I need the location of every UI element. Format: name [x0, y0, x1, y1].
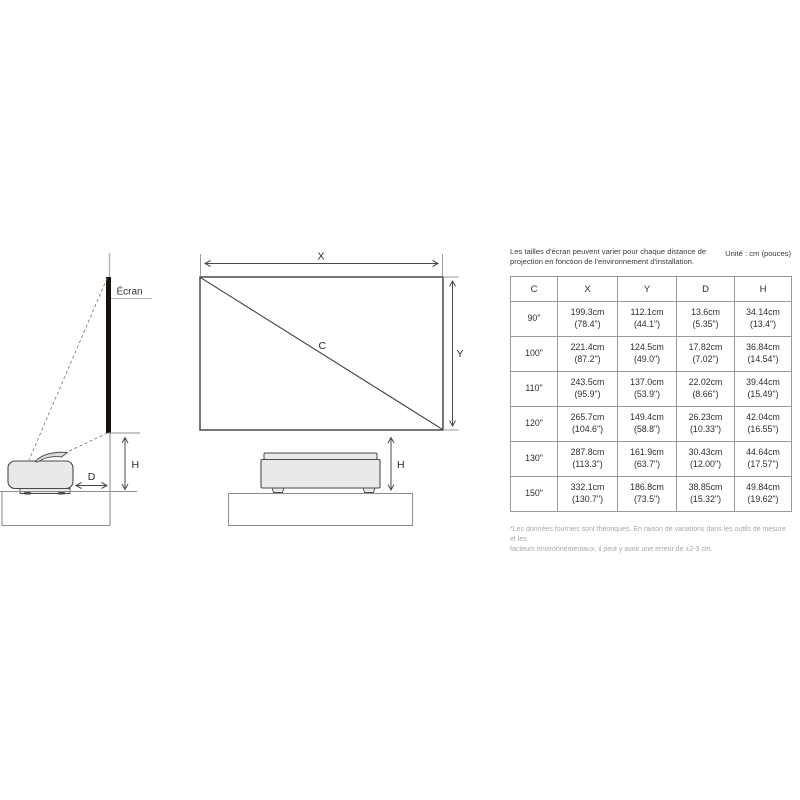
- x-label: X: [317, 251, 324, 263]
- inch-value: (87.2"): [558, 354, 617, 366]
- table-row: 90" 199.3cm(78.4") 112.1cm(44.1") 13.6cm…: [511, 302, 792, 337]
- cm-value: 39.44cm: [735, 377, 791, 389]
- inch-value: (19.62"): [735, 494, 791, 506]
- cm-value: 42.04cm: [735, 412, 791, 424]
- cm-value: 22.02cm: [677, 377, 734, 389]
- inch-value: (113.3"): [558, 459, 617, 471]
- value-cell: 332.1cm(130.7"): [558, 477, 618, 512]
- value-cell: 22.02cm(8.66"): [677, 372, 735, 407]
- inch-value: (15.32"): [677, 494, 734, 506]
- size-cell: 100": [511, 337, 558, 372]
- inch-value: (130.7"): [558, 494, 617, 506]
- cm-value: 221.4cm: [558, 342, 617, 354]
- value-cell: 49.84cm(19.62"): [735, 477, 792, 512]
- value-cell: 243.5cm(95.9"): [558, 372, 618, 407]
- h-label-front: H: [397, 459, 405, 471]
- value-cell: 42.04cm(16.55"): [735, 407, 792, 442]
- size-cell: 120": [511, 407, 558, 442]
- value-cell: 26.23cm(10.33"): [677, 407, 735, 442]
- table-row: 150" 332.1cm(130.7") 186.8cm(73.5") 38.8…: [511, 477, 792, 512]
- cm-value: 13.6cm: [677, 307, 734, 319]
- inch-value: (16.55"): [735, 424, 791, 436]
- cm-value: 265.7cm: [558, 412, 617, 424]
- value-cell: 137.0cm(53.9"): [618, 372, 677, 407]
- inch-value: (12.00"): [677, 459, 734, 471]
- value-cell: 13.6cm(5.35"): [677, 302, 735, 337]
- inch-value: (63.7"): [618, 459, 676, 471]
- projection-beam-upper: [29, 279, 107, 461]
- projector-front-foot-right: [363, 488, 375, 493]
- projector-side-body: [8, 461, 73, 489]
- intro-text: Les tailles d'écran peuvent varier pour …: [510, 247, 735, 266]
- front-view-diagram: X C Y H: [200, 251, 464, 526]
- inch-value: (58.8"): [618, 424, 676, 436]
- cm-value: 30.43cm: [677, 447, 734, 459]
- projector-side-foot-right: [58, 492, 65, 495]
- cm-value: 26.23cm: [677, 412, 734, 424]
- screen-size-table: C X Y D H 90" 199.3cm(78.4") 112.1cm(44.…: [510, 276, 792, 512]
- value-cell: 124.5cm(49.0"): [618, 337, 677, 372]
- cm-value: 199.3cm: [558, 307, 617, 319]
- inch-value: (44.1"): [618, 319, 676, 331]
- size-cell: 130": [511, 442, 558, 477]
- header-c: C: [511, 277, 558, 302]
- table-row: 120" 265.7cm(104.6") 149.4cm(58.8") 26.2…: [511, 407, 792, 442]
- value-cell: 186.8cm(73.5"): [618, 477, 677, 512]
- value-cell: 17.82cm(7.02"): [677, 337, 735, 372]
- header-row: C X Y D H: [511, 277, 792, 302]
- cm-value: 36.84cm: [735, 342, 791, 354]
- inch-value: (17.57"): [735, 459, 791, 471]
- table-row: 100" 221.4cm(87.2") 124.5cm(49.0") 17.82…: [511, 337, 792, 372]
- value-cell: 39.44cm(15.49"): [735, 372, 792, 407]
- inch-value: (104.6"): [558, 424, 617, 436]
- stand-table-front: [229, 494, 413, 526]
- cm-value: 38.85cm: [677, 482, 734, 494]
- header-y: Y: [618, 277, 677, 302]
- cm-value: 44.64cm: [735, 447, 791, 459]
- value-cell: 221.4cm(87.2"): [558, 337, 618, 372]
- value-cell: 36.84cm(14.54"): [735, 337, 792, 372]
- inch-value: (73.5"): [618, 494, 676, 506]
- value-cell: 149.4cm(58.8"): [618, 407, 677, 442]
- inch-value: (15.49"): [735, 389, 791, 401]
- table-row: 110" 243.5cm(95.9") 137.0cm(53.9") 22.02…: [511, 372, 792, 407]
- cm-value: 17.82cm: [677, 342, 734, 354]
- value-cell: 199.3cm(78.4"): [558, 302, 618, 337]
- inch-value: (53.9"): [618, 389, 676, 401]
- cm-value: 34.14cm: [735, 307, 791, 319]
- inch-value: (78.4"): [558, 319, 617, 331]
- inch-value: (49.0"): [618, 354, 676, 366]
- footnote-text: *Les données fournies sont théoriques. E…: [510, 525, 791, 555]
- cm-value: 332.1cm: [558, 482, 617, 494]
- value-cell: 44.64cm(17.57"): [735, 442, 792, 477]
- inch-value: (14.54"): [735, 354, 791, 366]
- installation-diagrams: Écran D H X C: [0, 240, 480, 540]
- cm-value: 149.4cm: [618, 412, 676, 424]
- inch-value: (5.35"): [677, 319, 734, 331]
- value-cell: 30.43cm(12.00"): [677, 442, 735, 477]
- screen-side-bar: [106, 277, 111, 433]
- inch-value: (95.9"): [558, 389, 617, 401]
- header-x: X: [558, 277, 618, 302]
- spec-panel: Les tailles d'écran peuvent varier pour …: [510, 247, 791, 555]
- size-cell: 150": [511, 477, 558, 512]
- cm-value: 161.9cm: [618, 447, 676, 459]
- projector-front-top: [264, 453, 377, 460]
- value-cell: 287.8cm(113.3"): [558, 442, 618, 477]
- cm-value: 124.5cm: [618, 342, 676, 354]
- cm-value: 243.5cm: [558, 377, 617, 389]
- h-label-side: H: [132, 459, 140, 471]
- inch-value: (13.4"): [735, 319, 791, 331]
- projector-front-body: [261, 460, 380, 489]
- size-cell: 110": [511, 372, 558, 407]
- cm-value: 112.1cm: [618, 307, 676, 319]
- c-label: C: [319, 340, 327, 352]
- value-cell: 34.14cm(13.4"): [735, 302, 792, 337]
- screen-label: Écran: [117, 285, 143, 298]
- table-row: 130" 287.8cm(113.3") 161.9cm(63.7") 30.4…: [511, 442, 792, 477]
- value-cell: 38.85cm(15.32"): [677, 477, 735, 512]
- projection-beam-lower: [66, 433, 108, 453]
- header-d: D: [677, 277, 735, 302]
- stand-table-side: [2, 492, 110, 526]
- unit-label: Unité : cm (pouces): [725, 249, 791, 258]
- cm-value: 186.8cm: [618, 482, 676, 494]
- y-label: Y: [457, 348, 464, 360]
- header-h: H: [735, 277, 792, 302]
- cm-value: 287.8cm: [558, 447, 617, 459]
- inch-value: (7.02"): [677, 354, 734, 366]
- manual-page: Écran D H X C: [0, 0, 800, 800]
- value-cell: 265.7cm(104.6"): [558, 407, 618, 442]
- side-view-diagram: Écran D H: [0, 253, 152, 526]
- inch-value: (10.33"): [677, 424, 734, 436]
- projector-front-foot-left: [272, 488, 284, 493]
- projector-side-foot-left: [24, 492, 31, 495]
- cm-value: 49.84cm: [735, 482, 791, 494]
- value-cell: 161.9cm(63.7"): [618, 442, 677, 477]
- cm-value: 137.0cm: [618, 377, 676, 389]
- inch-value: (8.66"): [677, 389, 734, 401]
- value-cell: 112.1cm(44.1"): [618, 302, 677, 337]
- d-label: D: [88, 471, 96, 483]
- size-cell: 90": [511, 302, 558, 337]
